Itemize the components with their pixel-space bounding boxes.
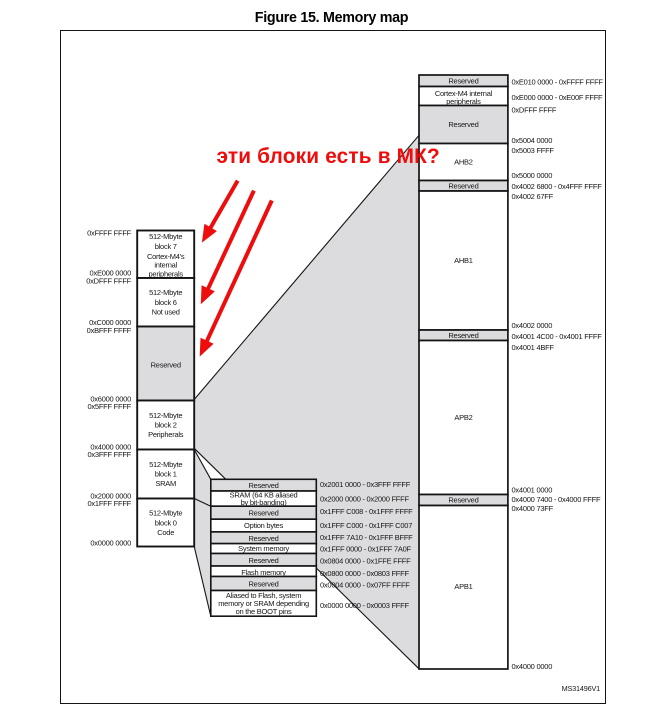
svg-text:SRAM: SRAM	[155, 479, 176, 488]
svg-text:System memory: System memory	[238, 544, 289, 553]
svg-text:block 7: block 7	[155, 242, 177, 251]
svg-text:0xE000 0000 - 0xE00F FFFF: 0xE000 0000 - 0xE00F FFFF	[512, 93, 604, 102]
svg-text:Reserved: Reserved	[448, 496, 478, 505]
svg-text:Peripherals: Peripherals	[148, 430, 184, 439]
svg-text:0x1FFF 0000 - 0x1FFF 7A0F: 0x1FFF 0000 - 0x1FFF 7A0F	[320, 545, 412, 554]
svg-text:Reserved: Reserved	[448, 120, 478, 129]
svg-text:512-Mbyte: 512-Mbyte	[149, 288, 182, 297]
svg-text:AHB2: AHB2	[454, 158, 473, 167]
svg-text:Reserved: Reserved	[151, 360, 181, 369]
svg-text:0x5FFF FFFF: 0x5FFF FFFF	[88, 402, 132, 411]
svg-text:AHB1: AHB1	[454, 256, 473, 265]
svg-text:peripherals: peripherals	[149, 269, 184, 278]
svg-text:0x5004 0000: 0x5004 0000	[512, 136, 553, 145]
svg-text:Reserved: Reserved	[248, 534, 278, 543]
svg-text:0x4000 7400 - 0x4000 FFFF: 0x4000 7400 - 0x4000 FFFF	[512, 495, 601, 504]
svg-text:Option bytes: Option bytes	[244, 521, 284, 530]
svg-text:0x0004 0000 - 0x07FF FFFF: 0x0004 0000 - 0x07FF FFFF	[320, 581, 410, 590]
svg-text:512-Mbyte: 512-Mbyte	[149, 232, 182, 241]
svg-text:0x4000 73FF: 0x4000 73FF	[512, 504, 554, 513]
svg-text:0x4001 4C00 - 0x4001 FFFF: 0x4001 4C00 - 0x4001 FFFF	[512, 332, 603, 341]
svg-text:эти блоки есть в МК?: эти блоки есть в МК?	[217, 145, 440, 168]
svg-text:0x1FFF C008 - 0x1FFF FFFF: 0x1FFF C008 - 0x1FFF FFFF	[320, 507, 413, 516]
svg-text:0xDFFF FFFF: 0xDFFF FFFF	[512, 105, 557, 114]
svg-text:0x4000 0000: 0x4000 0000	[512, 662, 553, 671]
svg-text:0x0000 0000 - 0x0003 FFFF: 0x0000 0000 - 0x0003 FFFF	[320, 601, 409, 610]
svg-text:0x4001 4BFF: 0x4001 4BFF	[512, 343, 555, 352]
svg-text:APB1: APB1	[454, 582, 472, 591]
svg-text:0x4001 0000: 0x4001 0000	[512, 486, 553, 495]
svg-text:512-Mbyte: 512-Mbyte	[149, 411, 182, 420]
svg-text:0x5003 FFFF: 0x5003 FFFF	[512, 146, 555, 155]
svg-text:0x4002 67FF: 0x4002 67FF	[512, 192, 554, 201]
svg-text:block 0: block 0	[155, 518, 177, 527]
svg-text:0x0804 0000 - 0x1FFE FFFF: 0x0804 0000 - 0x1FFE FFFF	[320, 557, 411, 566]
svg-text:0x2001 0000 - 0x3FFF FFFF: 0x2001 0000 - 0x3FFF FFFF	[320, 480, 411, 489]
svg-text:on the BOOT pins: on the BOOT pins	[236, 607, 292, 616]
svg-text:0x4002 0000: 0x4002 0000	[512, 321, 553, 330]
svg-text:0x2000 0000 - 0x2000 FFFF: 0x2000 0000 - 0x2000 FFFF	[320, 495, 409, 504]
svg-text:0x5000 0000: 0x5000 0000	[512, 171, 553, 180]
svg-text:Reserved: Reserved	[448, 181, 478, 190]
svg-text:Reserved: Reserved	[448, 76, 478, 85]
svg-text:Reserved: Reserved	[248, 481, 278, 490]
svg-text:block 2: block 2	[155, 421, 177, 430]
svg-text:0x1FFF C000 - 0x1FFF C007: 0x1FFF C000 - 0x1FFF C007	[320, 521, 412, 530]
svg-text:block 1: block 1	[155, 470, 177, 479]
svg-text:0x3FFF FFFF: 0x3FFF FFFF	[88, 450, 132, 459]
svg-text:0x1FFF 7A10 - 0x1FFF BFFF: 0x1FFF 7A10 - 0x1FFF BFFF	[320, 533, 413, 542]
svg-text:APB2: APB2	[454, 413, 472, 422]
svg-text:0x0800 0000 - 0x0803 FFFF: 0x0800 0000 - 0x0803 FFFF	[320, 569, 409, 578]
svg-text:internal: internal	[154, 261, 177, 270]
svg-text:0x0000 0000: 0x0000 0000	[90, 538, 131, 547]
svg-text:block 6: block 6	[155, 298, 177, 307]
svg-text:Code: Code	[157, 528, 174, 537]
svg-text:0xFFFF FFFF: 0xFFFF FFFF	[87, 228, 132, 237]
svg-text:0xDFFF FFFF: 0xDFFF FFFF	[86, 276, 131, 285]
svg-text:Reserved: Reserved	[248, 509, 278, 518]
svg-text:Not used: Not used	[152, 307, 180, 316]
svg-text:Reserved: Reserved	[248, 556, 278, 565]
svg-text:0x4002 6800 - 0x4FFF FFFF: 0x4002 6800 - 0x4FFF FFFF	[512, 182, 603, 191]
svg-text:512-Mbyte: 512-Mbyte	[149, 460, 182, 469]
svg-text:0xE010 0000 - 0xFFFF FFFF: 0xE010 0000 - 0xFFFF FFFF	[512, 77, 604, 86]
svg-text:Reserved: Reserved	[248, 579, 278, 588]
svg-text:512-Mbyte: 512-Mbyte	[149, 509, 182, 518]
svg-text:peripherals: peripherals	[446, 97, 481, 106]
svg-text:0x1FFF FFFF: 0x1FFF FFFF	[88, 499, 132, 508]
svg-text:0xBFFF FFFF: 0xBFFF FFFF	[87, 326, 132, 335]
svg-text:Reserved: Reserved	[448, 331, 478, 340]
